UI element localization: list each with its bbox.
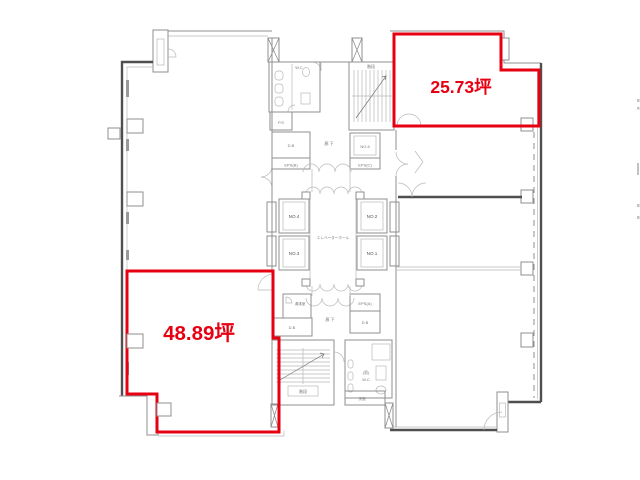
- ps-label: P.S: [278, 120, 284, 125]
- eps-b-label: EPS(B): [284, 163, 298, 168]
- elevator-no4-label: NO.4: [289, 214, 300, 219]
- senmen-label: 洗面: [358, 396, 366, 401]
- unit-4889-area-label: 48.89坪: [163, 322, 235, 345]
- unit-2573-area-label: 25.73坪: [430, 77, 492, 97]
- elevator-no5-label: NO.5: [360, 144, 370, 149]
- db-bottom-left-label: D.B: [289, 325, 296, 330]
- stairs-bottom-label: 階段: [299, 388, 307, 394]
- elevator-no3-label: NO.3: [289, 251, 300, 256]
- right-edge-artifacts: [637, 99, 640, 219]
- eps-a-label: EPS(A): [358, 301, 372, 306]
- stairs-top-treads: [352, 70, 392, 122]
- db-mid-label: D.B: [288, 143, 295, 148]
- right-wing: [396, 130, 522, 430]
- right-wall-windows: [521, 118, 533, 347]
- stairs-bottom: 階段: [272, 340, 344, 405]
- floor-plan-page: W.C P.S 階段 D.B 廊 下 NO.5 EPS(B) EPS(C): [0, 0, 640, 480]
- yuwakashi-label: 湯沸室: [295, 301, 306, 306]
- elevator-no2-label: NO.2: [367, 214, 378, 219]
- stairs-top-label: 階段: [367, 63, 375, 69]
- corridor-bottom-label: 廊 下: [325, 316, 334, 322]
- corridor-top-label: 廊 下: [324, 140, 333, 146]
- wc-bottom-label-1: (男): [363, 370, 370, 375]
- core-bottom: 湯沸室 廊 下 EPS(A) D.B D.B: [272, 294, 380, 336]
- core-top: W.C P.S 階段: [269, 38, 394, 130]
- eps-c-label: EPS(C): [358, 163, 372, 168]
- unit-2573: 25.73坪: [394, 34, 539, 126]
- elevator-no1-label: NO.1: [367, 251, 378, 256]
- elevator-hall: NO.4 NO.2 NO.3 NO.1 エレベーターホール: [267, 187, 399, 291]
- toilet-fixtures: [275, 68, 310, 113]
- db-bottom-right-label: D.B: [362, 320, 369, 325]
- floor-plan-svg: W.C P.S 階段 D.B 廊 下 NO.5 EPS(B) EPS(C): [0, 0, 640, 480]
- wc-top-label: W.C: [295, 65, 303, 70]
- wc-bottom-label-2: W.C: [362, 377, 370, 382]
- core-mid: D.B 廊 下 NO.5 EPS(B) EPS(C): [261, 132, 380, 188]
- elevator-hall-label: エレベーターホール: [317, 235, 350, 240]
